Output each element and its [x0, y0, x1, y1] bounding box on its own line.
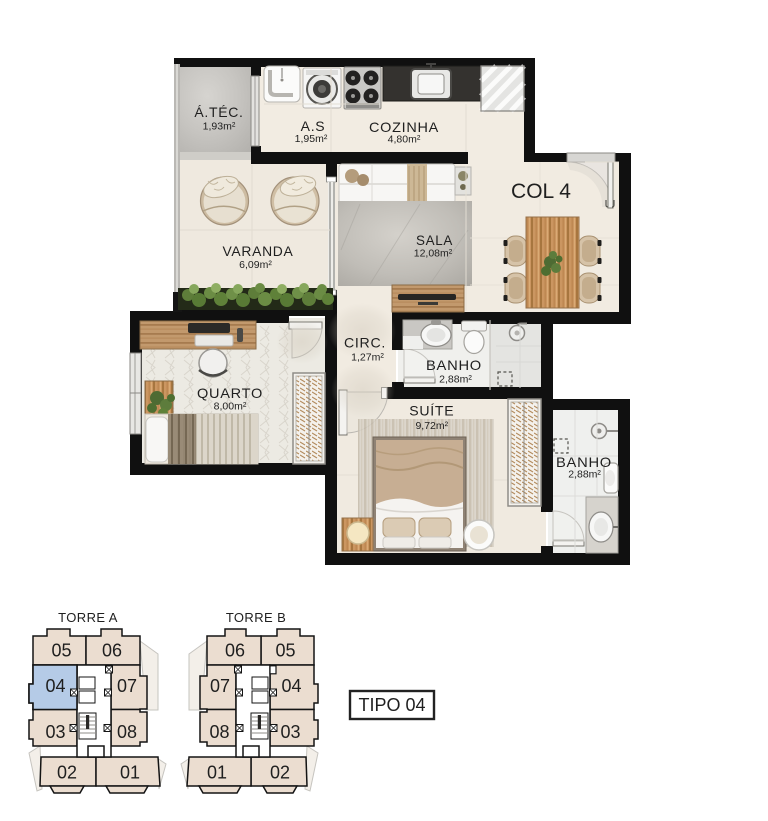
svg-text:SALA: SALA	[416, 232, 453, 248]
svg-text:Á.TÉC.: Á.TÉC.	[194, 104, 243, 120]
svg-text:QUARTO: QUARTO	[197, 385, 263, 401]
svg-text:04: 04	[45, 676, 65, 696]
svg-text:02: 02	[270, 763, 290, 783]
svg-text:07: 07	[210, 676, 230, 696]
svg-text:03: 03	[280, 722, 300, 742]
svg-text:9,72m²: 9,72m²	[415, 420, 448, 432]
svg-text:4,80m²: 4,80m²	[388, 134, 421, 146]
svg-text:04: 04	[281, 676, 301, 696]
svg-text:08: 08	[209, 722, 229, 742]
svg-text:CIRC.: CIRC.	[344, 335, 386, 351]
svg-text:01: 01	[120, 763, 140, 783]
svg-text:SUÍTE: SUÍTE	[409, 403, 454, 419]
svg-text:03: 03	[45, 722, 65, 742]
svg-text:TORRE A: TORRE A	[58, 610, 118, 625]
svg-text:1,27m²: 1,27m²	[351, 352, 384, 364]
svg-text:BANHO: BANHO	[426, 357, 482, 373]
svg-text:TORRE B: TORRE B	[226, 610, 286, 625]
svg-text:1,95m²: 1,95m²	[295, 133, 328, 145]
svg-text:01: 01	[207, 763, 227, 783]
svg-text:2,88m²: 2,88m²	[568, 469, 601, 481]
svg-text:COL 4: COL 4	[511, 180, 571, 203]
svg-text:2,88m²: 2,88m²	[439, 374, 472, 386]
svg-text:VARANDA: VARANDA	[223, 243, 294, 259]
svg-text:A.S: A.S	[301, 118, 326, 134]
svg-text:12,08m²: 12,08m²	[414, 248, 453, 260]
svg-text:8,00m²: 8,00m²	[214, 401, 247, 413]
svg-text:08: 08	[117, 722, 137, 742]
svg-text:TIPO 04: TIPO 04	[358, 695, 425, 715]
svg-text:05: 05	[51, 641, 71, 661]
svg-text:06: 06	[102, 641, 122, 661]
svg-text:05: 05	[275, 641, 295, 661]
svg-text:6,09m²: 6,09m²	[239, 259, 272, 271]
svg-text:06: 06	[225, 641, 245, 661]
svg-text:02: 02	[57, 763, 77, 783]
svg-text:07: 07	[117, 676, 137, 696]
svg-text:1,93m²: 1,93m²	[203, 121, 236, 133]
